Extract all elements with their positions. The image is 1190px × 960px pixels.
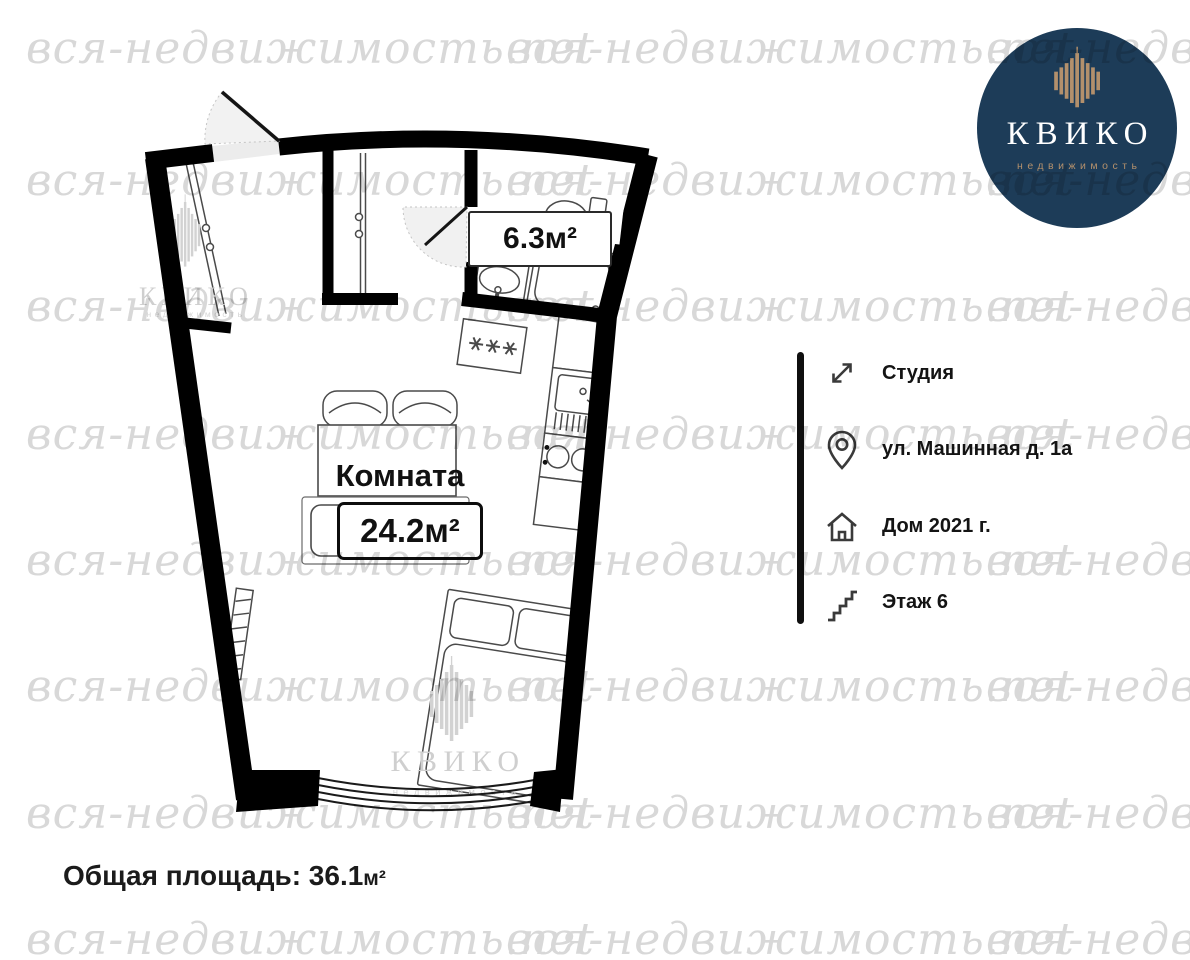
bathroom-area-badge: 6.3м² xyxy=(468,211,612,267)
expand-arrows-icon xyxy=(822,351,862,395)
hall-closet xyxy=(356,153,366,294)
info-item-year: Дом 2021 г. xyxy=(822,503,1072,549)
info-item-label: Дом 2021 г. xyxy=(882,515,991,538)
info-item-address: ул. Машинная д. 1а xyxy=(822,427,1072,473)
total-area-unit: м² xyxy=(363,867,386,890)
kviko-watermark-subtitle: недвижимость xyxy=(146,309,245,319)
chair xyxy=(393,391,457,427)
room-area-badge: 24.2м² xyxy=(337,502,483,560)
location-pin-icon xyxy=(822,428,862,472)
wall-corner xyxy=(236,770,320,812)
info-panel-divider xyxy=(797,352,804,624)
kviko-watermark-name: КВИКО xyxy=(139,282,253,311)
building-icon xyxy=(1054,46,1100,108)
room-area-value: 24.2м² xyxy=(360,512,460,550)
bathroom-area-value: 6.3м² xyxy=(503,222,577,256)
logo-subtitle: недвижимость xyxy=(1013,160,1142,172)
info-item-label: ул. Машинная д. 1а xyxy=(882,438,1072,461)
room-name-label: Комната xyxy=(318,458,482,494)
wall-corner xyxy=(530,769,564,812)
house-icon xyxy=(822,504,862,548)
chair xyxy=(323,391,387,427)
fridge xyxy=(457,319,527,373)
stairs-icon xyxy=(822,581,862,625)
logo-name: КВИКО xyxy=(1000,116,1155,153)
entry-door xyxy=(205,92,279,144)
info-item-label: Студия xyxy=(882,362,954,385)
total-area-label: Общая площадь: 36.1м² xyxy=(63,860,386,892)
kviko-watermark-name: КВИКО xyxy=(390,745,525,778)
info-item-label: Этаж 6 xyxy=(882,591,948,614)
total-area-text: Общая площадь: 36.1 xyxy=(63,860,363,891)
info-panel: Студия ул. Машинная д. 1а Дом 2021 г. xyxy=(822,350,1072,626)
kviko-logo: КВИКО недвижимость xyxy=(977,28,1177,228)
info-item-type: Студия xyxy=(822,350,1072,396)
bathroom-door xyxy=(403,207,467,267)
info-item-floor: Этаж 6 xyxy=(822,580,1072,626)
real-estate-listing-image: КВИКО недвижимость КВИКО недвижимость xyxy=(0,0,1190,960)
